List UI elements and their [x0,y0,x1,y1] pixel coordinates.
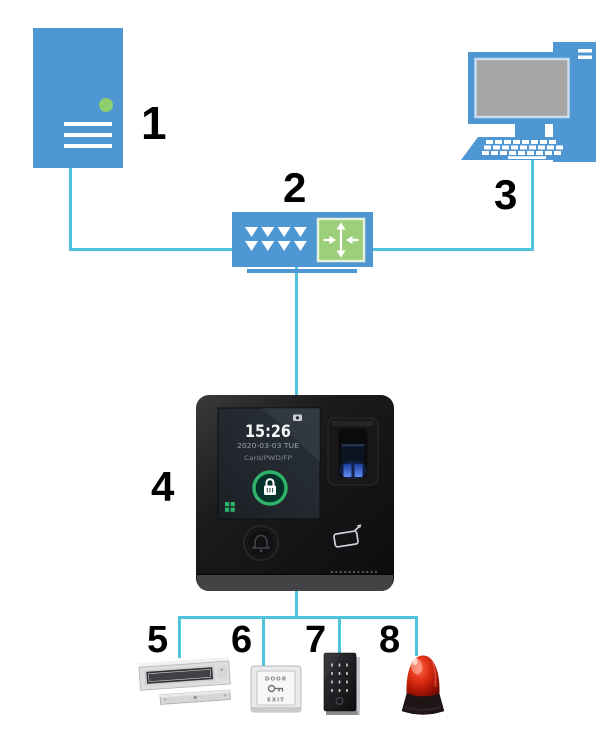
keypad-label: 7 [305,621,326,659]
terminal-label: 4 [151,466,174,508]
server-icon [33,28,123,168]
cable-server-vertical [69,168,72,251]
exit-button-text-top: DOOR [265,677,287,683]
terminal-bottom-strip [197,575,393,591]
terminal-screen: 15:26 2020-03-03 TUE Card/PWD/FP [218,408,320,519]
cable-computer-vertical [531,160,534,251]
terminal-time: 15:26 [245,422,291,442]
computer-keyboard [461,137,583,160]
server-slot [64,122,112,126]
cable-computer-switch [372,248,534,251]
cable-terminal-bus [295,591,298,618]
switch-icon [232,212,373,267]
exit-button-icon: DOOR EXIT [249,664,305,716]
server-slot [64,133,112,137]
switch-base-line [247,269,357,273]
access-terminal-icon: 15:26 2020-03-03 TUE Card/PWD/FP [196,392,396,592]
siren-icon [393,647,453,719]
keypad-icon [319,652,365,720]
switch-label: 2 [283,167,306,209]
lock-status-icon [254,472,286,504]
switch-crossover-module [318,219,364,261]
cable-switch-terminal [295,267,298,395]
terminal-date: 2020-03-03 TUE [237,442,299,450]
cable-server-switch [69,248,233,251]
terminal-auth-modes: Card/PWD/FP [244,454,292,462]
cable-drop-exit-button [262,616,265,668]
server-label: 1 [141,100,167,146]
doorbell-button [244,526,278,560]
server-status-dot [99,98,113,112]
fingerprint-scanner [328,418,378,485]
exit-button-label: 6 [231,621,252,659]
lock-label: 5 [147,621,168,659]
computer-icon [452,36,602,166]
server-slot [64,144,112,148]
network-topology-diagram: 1 2 [0,0,608,733]
exit-button-text-bottom: EXIT [267,698,285,704]
siren-label: 8 [379,621,400,659]
computer-label: 3 [494,174,517,216]
